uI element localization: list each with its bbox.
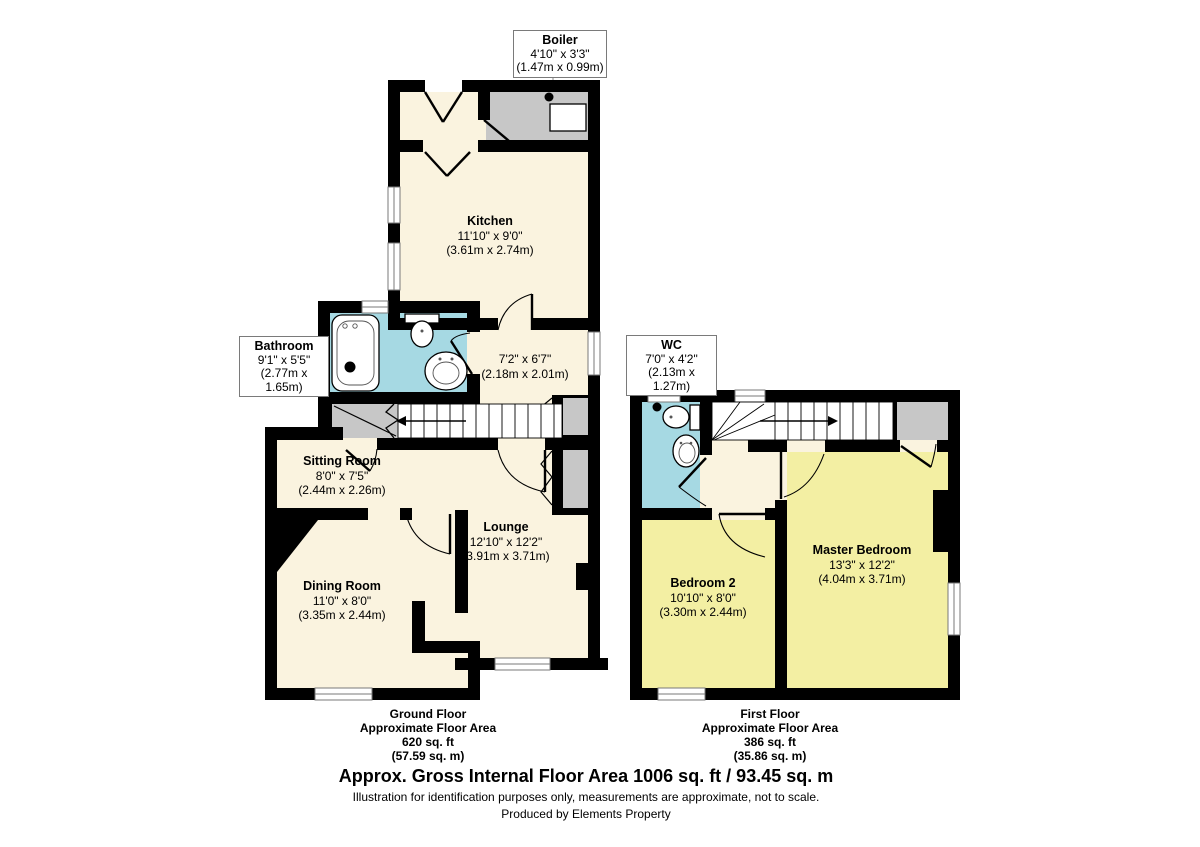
credit-text: Produced by Elements Property	[0, 807, 1172, 821]
room-label-kitchen: Kitchen 11'10" x 9'0" (3.61m x 2.74m)	[409, 214, 571, 258]
first-floor-caption: First Floor Approximate Floor Area 386 s…	[670, 707, 870, 763]
caption-line: (35.86 sq. m)	[670, 749, 870, 763]
room-name: Sitting Room	[261, 454, 423, 469]
room-name: Dining Room	[261, 579, 423, 594]
caption-line: 386 sq. ft	[670, 735, 870, 749]
room-dim-metric: (3.91m x 3.71m)	[425, 549, 587, 564]
room-dim-metric: (3.35m x 2.44m)	[261, 608, 423, 623]
bathtub-drain	[345, 362, 356, 373]
room-dim-imperial: 9'1" x 5'5"	[242, 354, 326, 368]
caption-title: Ground Floor	[328, 707, 528, 721]
wc-label-box: WC 7'0" x 4'2" (2.13m x 1.27m)	[626, 335, 717, 396]
room-label-master-bedroom: Master Bedroom 13'3" x 12'2" (4.04m x 3.…	[779, 543, 945, 587]
room-name: Bedroom 2	[622, 576, 784, 591]
room-label-lounge: Lounge 12'10" x 12'2" (3.91m x 3.71m)	[425, 520, 587, 564]
toilet-cistern	[690, 405, 700, 430]
room-dim-metric: (2.13m x 1.27m)	[629, 366, 714, 393]
wc-point	[653, 403, 662, 412]
room-name: Master Bedroom	[779, 543, 945, 558]
room-dim-imperial: 7'0" x 4'2"	[629, 353, 714, 367]
room-dim-metric: (3.30m x 2.44m)	[622, 605, 784, 620]
boiler-label-box: Boiler 4'10" x 3'3" (1.47m x 0.99m)	[513, 30, 607, 78]
room-dim-metric: (3.61m x 2.74m)	[409, 243, 571, 258]
first-floor-plan	[630, 382, 960, 700]
disclaimer-text: Illustration for identification purposes…	[0, 790, 1172, 804]
room-dim-imperial: 7'2" x 6'7"	[445, 352, 605, 367]
room-dim-imperial: 12'10" x 12'2"	[425, 535, 587, 550]
room-label-hall: 7'2" x 6'7" (2.18m x 2.01m)	[445, 352, 605, 381]
stairs-first	[712, 402, 893, 440]
room-dim-imperial: 10'10" x 8'0"	[622, 591, 784, 606]
room-label-dining-room: Dining Room 11'0" x 8'0" (3.35m x 2.44m)	[261, 579, 423, 623]
room-name: Boiler	[516, 34, 604, 48]
boiler-point	[545, 93, 554, 102]
boiler-unit	[550, 104, 586, 131]
room-dim-metric: (2.77m x 1.65m)	[242, 367, 326, 394]
ground-floor-caption: Ground Floor Approximate Floor Area 620 …	[328, 707, 528, 763]
caption-line: Approximate Floor Area	[670, 721, 870, 735]
bathroom-label-box: Bathroom 9'1" x 5'5" (2.77m x 1.65m)	[239, 336, 329, 397]
room-name: Kitchen	[409, 214, 571, 229]
caption-line: (57.59 sq. m)	[328, 749, 528, 763]
room-dim-imperial: 11'0" x 8'0"	[261, 594, 423, 609]
floorplan-page: Boiler 4'10" x 3'3" (1.47m x 0.99m) Bath…	[0, 0, 1200, 847]
room-name: Bathroom	[242, 340, 326, 354]
floor-plan-canvas	[0, 0, 1200, 847]
room-label-bedroom2: Bedroom 2 10'10" x 8'0" (3.30m x 2.44m)	[622, 576, 784, 620]
room-dim-imperial: 11'10" x 9'0"	[409, 229, 571, 244]
room-dim-metric: (2.44m x 2.26m)	[261, 483, 423, 498]
gross-area-title: Approx. Gross Internal Floor Area 1006 s…	[0, 766, 1172, 787]
chimney-breast	[576, 563, 590, 590]
room-name: Lounge	[425, 520, 587, 535]
room-dim-metric: (1.47m x 0.99m)	[516, 61, 604, 75]
room-label-sitting-room: Sitting Room 8'0" x 7'5" (2.44m x 2.26m)	[261, 454, 423, 498]
caption-title: First Floor	[670, 707, 870, 721]
room-dim-imperial: 13'3" x 12'2"	[779, 558, 945, 573]
room-name: WC	[629, 339, 714, 353]
room-dim-metric: (4.04m x 3.71m)	[779, 572, 945, 587]
caption-line: Approximate Floor Area	[328, 721, 528, 735]
caption-line: 620 sq. ft	[328, 735, 528, 749]
storage-floor	[897, 400, 948, 440]
room-dim-metric: (2.18m x 2.01m)	[445, 367, 605, 382]
toilet-bowl	[411, 321, 433, 347]
room-dim-imperial: 4'10" x 3'3"	[516, 48, 604, 62]
toilet-bowl	[663, 406, 689, 428]
room-dim-imperial: 8'0" x 7'5"	[261, 469, 423, 484]
